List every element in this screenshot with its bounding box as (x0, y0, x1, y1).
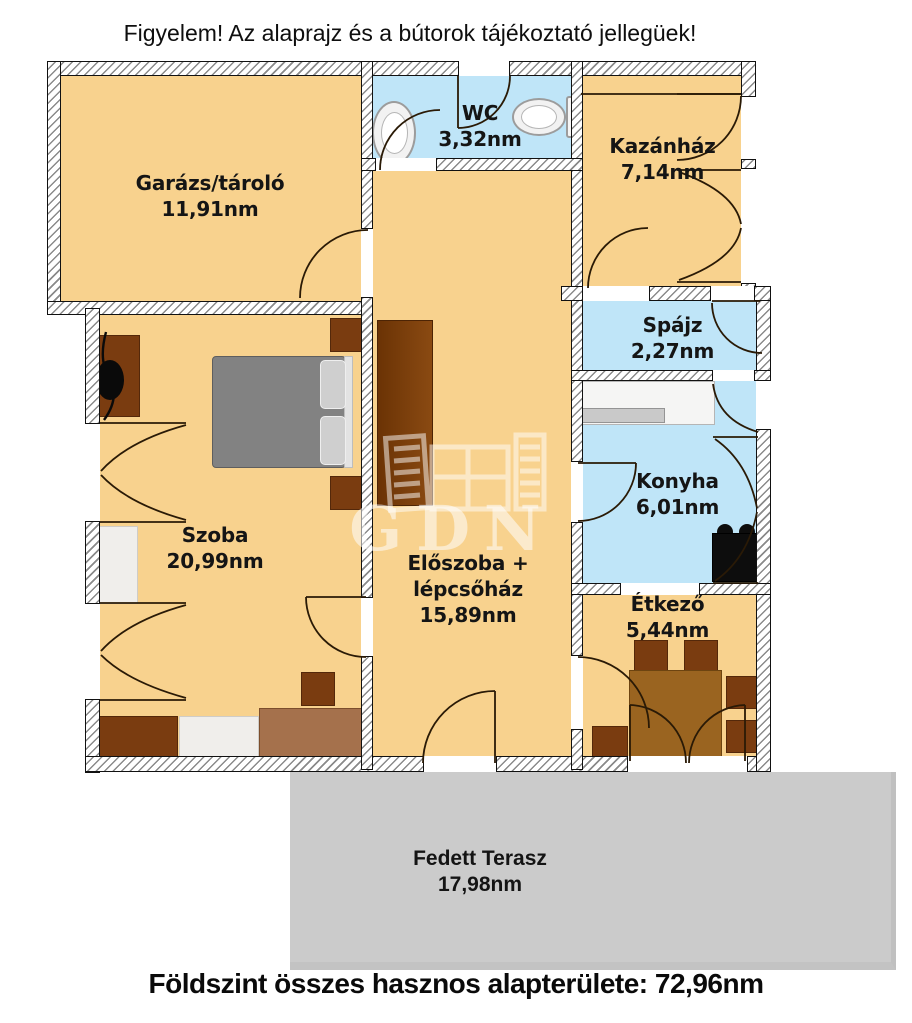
door-opening (85, 603, 100, 700)
kitchen-sink (581, 408, 665, 423)
dresser-white (179, 716, 259, 760)
washbasin-bowl (381, 112, 408, 154)
window-opening (712, 370, 755, 381)
wc-door-opening (375, 158, 437, 171)
label-kitchen: Konyha 6,01nm (600, 468, 755, 520)
garage-door-opening (361, 228, 373, 298)
label-terrace: Fedett Terasz 17,98nm (350, 846, 610, 897)
floor-plan-page: Figyelem! Az alaprajz és a bútorok tájék… (0, 0, 912, 1023)
terrace-door-opening (627, 756, 748, 772)
dining-table (629, 670, 722, 762)
window-opening (741, 168, 756, 284)
bedroom-door-opening (361, 597, 373, 657)
window-opening (741, 96, 756, 160)
door-opening (85, 423, 100, 522)
label-dining: Étkező 5,44nm (590, 591, 745, 643)
label-bedroom: Szoba 20,99nm (90, 522, 340, 574)
door-opening (458, 61, 510, 76)
chair (301, 672, 335, 706)
wall-left-garage (47, 61, 61, 313)
label-boiler: Kazánház 7,14nm (585, 133, 740, 185)
dining-chair (726, 720, 759, 753)
wall-top (47, 61, 756, 76)
label-wc: WC 3,32nm (415, 100, 545, 152)
dining-chair (634, 640, 668, 673)
wall-right-lower (756, 288, 771, 772)
sofa (259, 708, 366, 762)
notice-text: Figyelem! Az alaprajz és a bútorok tájék… (0, 20, 820, 47)
pillow (320, 360, 346, 409)
boiler-door-opening (582, 286, 650, 301)
desk-chair (96, 360, 124, 400)
pantry-door-opening (710, 286, 755, 301)
window-opening (756, 380, 771, 430)
label-pantry: Spájz 2,27nm (595, 312, 750, 364)
label-garage: Garázs/tároló 11,91nm (60, 170, 360, 222)
dining-chair (726, 676, 759, 709)
cabinet (96, 716, 178, 760)
label-hall: Előszoba + lépcsőház 15,89nm (386, 550, 550, 628)
entry-door-opening (423, 756, 497, 772)
dining-door-opening (571, 655, 583, 730)
footer-total-area: Földszint összes hasznos alapterülete: 7… (0, 968, 912, 1000)
dining-chair (592, 726, 628, 758)
dining-chair (684, 640, 718, 673)
